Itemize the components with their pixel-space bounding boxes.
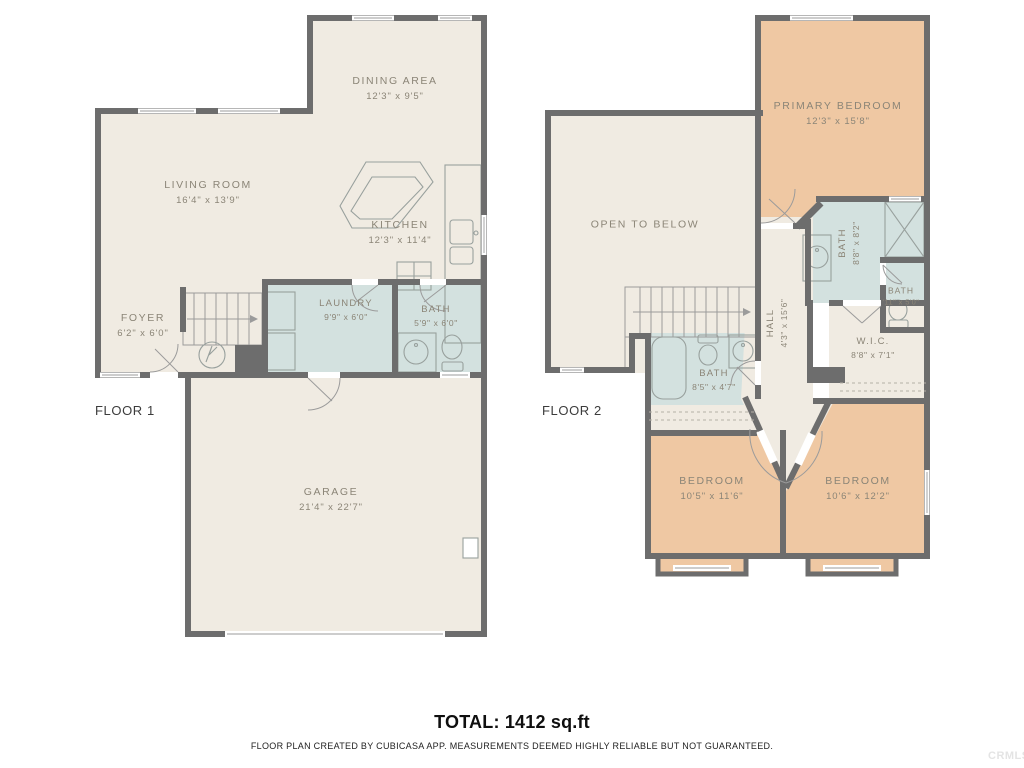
room-dims: 8'5" x 4'7" — [692, 382, 736, 393]
room-dims: 16'4" x 13'9" — [164, 195, 252, 207]
room-label-hall: HALL 4'3" x 15'6" — [765, 298, 790, 347]
floor2-tag: FLOOR 2 — [542, 403, 602, 418]
room-name: BEDROOM — [679, 475, 744, 488]
room-label-kitchen: KITCHEN 12'3" x 11'4" — [368, 219, 431, 247]
room-label-primary-bedroom: PRIMARY BEDROOM 12'3" x 15'8" — [774, 100, 903, 128]
room-name: DINING AREA — [352, 75, 437, 88]
room-dims: 6'2" x 6'0" — [117, 328, 168, 340]
room-name: OPEN TO BELOW — [591, 218, 700, 231]
room-label-hall-bath: BATH 8'5" x 4'7" — [692, 368, 736, 393]
room-name: LAUNDRY — [319, 298, 373, 310]
room-label-wic: W.I.C. 8'8" x 7'1" — [851, 336, 895, 361]
room-name: HALL — [765, 298, 777, 347]
room-label-bedroom-left: BEDROOM 10'5" x 11'6" — [679, 475, 744, 503]
crmls-watermark: CRMLS — [988, 750, 1024, 762]
room-dims: 8'8" x 7'1" — [851, 350, 895, 361]
disclaimer-text: FLOOR PLAN CREATED BY CUBICASA APP. MEAS… — [251, 741, 773, 751]
room-name: BATH — [883, 286, 920, 297]
room-label-open-to-below: OPEN TO BELOW — [591, 218, 700, 231]
room-dims: '11" x 5'0" — [883, 297, 920, 306]
floor1-tag: FLOOR 1 — [95, 403, 155, 418]
room-dims: 12'3" x 11'4" — [368, 235, 431, 247]
room-name: FOYER — [117, 312, 168, 325]
room-name: PRIMARY BEDROOM — [774, 100, 903, 113]
room-label-living-room: LIVING ROOM 16'4" x 13'9" — [164, 179, 252, 207]
room-label-dining-area: DINING AREA 12'3" x 9'5" — [352, 75, 437, 103]
room-name: BEDROOM — [825, 475, 890, 488]
room-name: BATH — [414, 304, 458, 316]
room-dims: 10'6" x 12'2" — [825, 491, 890, 503]
total-area-label: TOTAL: 1412 sq.ft — [434, 712, 590, 733]
room-label-garage: GARAGE 21'4" x 22'7" — [299, 486, 363, 514]
room-name: BATH — [837, 221, 849, 265]
room-label-bath-floor1: BATH 5'9" x 6'0" — [414, 304, 458, 329]
room-name: KITCHEN — [368, 219, 431, 232]
room-name: LIVING ROOM — [164, 179, 252, 192]
room-dims: 9'9" x 6'0" — [319, 312, 373, 323]
floor-plan-page: DINING AREA 12'3" x 9'5" LIVING ROOM 16'… — [0, 0, 1024, 768]
room-label-primary-bath: BATH 8'8" x 8'2" — [837, 221, 862, 265]
room-dims: 12'3" x 15'8" — [774, 116, 903, 128]
room-name: GARAGE — [299, 486, 363, 499]
room-dims: 12'3" x 9'5" — [352, 91, 437, 103]
room-label-small-bath: BATH '11" x 5'0" — [883, 286, 920, 307]
room-name: W.I.C. — [851, 336, 895, 348]
room-name: BATH — [692, 368, 736, 380]
room-dims: 21'4" x 22'7" — [299, 502, 363, 514]
room-dims: 8'8" x 8'2" — [851, 221, 862, 265]
room-label-foyer: FOYER 6'2" x 6'0" — [117, 312, 168, 340]
room-dims: 5'9" x 6'0" — [414, 318, 458, 329]
room-label-bedroom-right: BEDROOM 10'6" x 12'2" — [825, 475, 890, 503]
room-dims: 10'5" x 11'6" — [679, 491, 744, 503]
room-label-laundry: LAUNDRY 9'9" x 6'0" — [319, 298, 373, 323]
room-dims: 4'3" x 15'6" — [779, 298, 790, 347]
